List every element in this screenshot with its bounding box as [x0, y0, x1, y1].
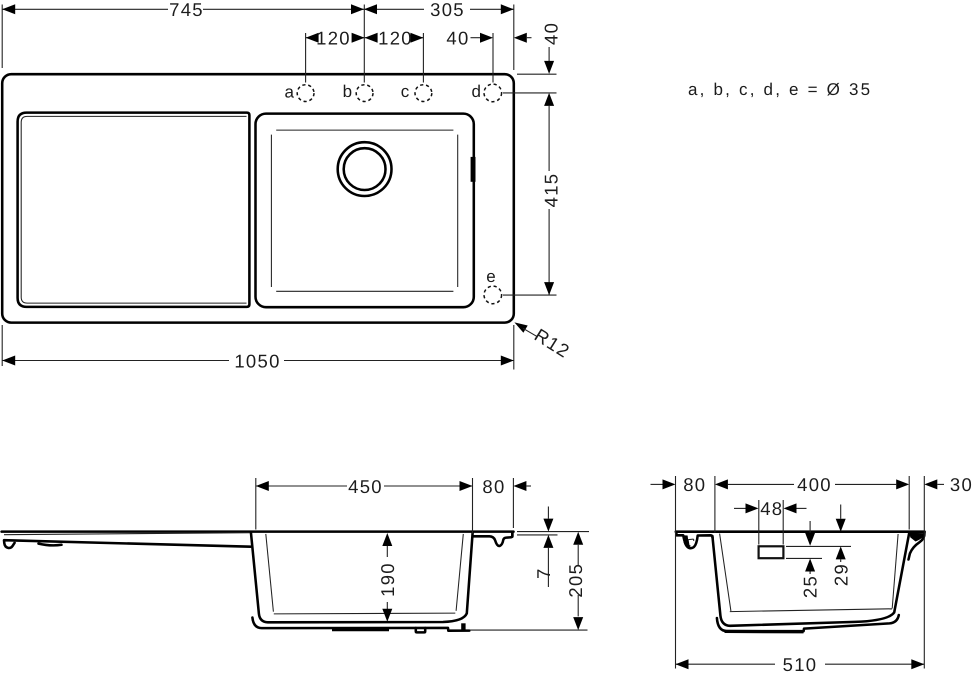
svg-text:29: 29 — [830, 563, 851, 586]
svg-text:40: 40 — [446, 28, 469, 49]
svg-text:80: 80 — [683, 474, 706, 495]
svg-text:415: 415 — [541, 173, 562, 208]
svg-text:d: d — [471, 82, 480, 101]
svg-text:25: 25 — [800, 575, 821, 598]
svg-text:120: 120 — [378, 28, 413, 49]
svg-text:190: 190 — [377, 562, 398, 597]
svg-text:30: 30 — [950, 474, 973, 495]
svg-text:a, b, c, d, e = Ø 35: a, b, c, d, e = Ø 35 — [688, 80, 872, 99]
svg-text:c: c — [401, 82, 410, 101]
svg-text:a: a — [284, 83, 294, 102]
svg-text:80: 80 — [482, 476, 505, 497]
svg-text:40: 40 — [540, 22, 561, 45]
svg-text:305: 305 — [430, 0, 465, 20]
svg-text:450: 450 — [348, 476, 383, 497]
svg-text:1050: 1050 — [234, 350, 280, 371]
svg-text:48: 48 — [760, 498, 783, 519]
svg-text:b: b — [343, 82, 352, 101]
svg-text:745: 745 — [169, 0, 204, 20]
svg-text:205: 205 — [565, 563, 586, 598]
svg-text:7: 7 — [533, 567, 554, 579]
svg-text:120: 120 — [316, 28, 351, 49]
svg-text:400: 400 — [797, 474, 832, 495]
svg-text:510: 510 — [783, 654, 818, 675]
svg-text:e: e — [486, 267, 495, 286]
